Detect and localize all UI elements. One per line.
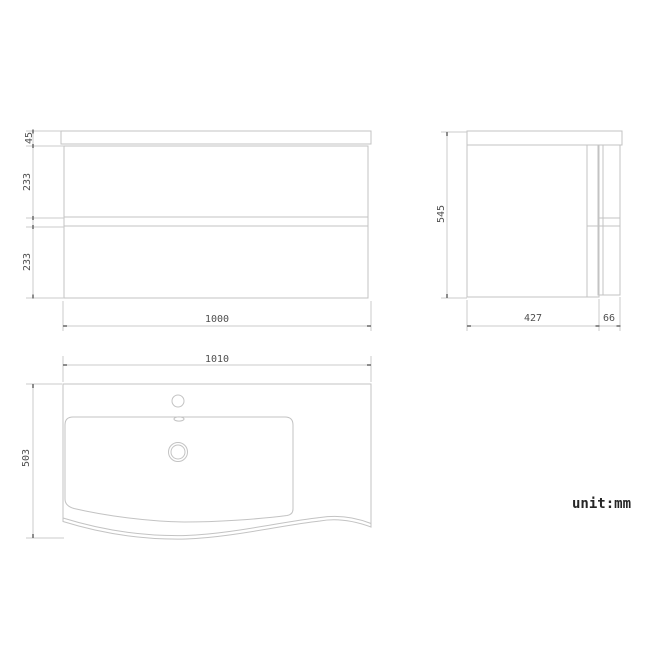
front-view-left-dimension: 45 233 233 (22, 130, 64, 299)
technical-drawing-page: 45 233 233 1000 5 (0, 0, 650, 650)
overflow-slot-icon (174, 417, 184, 421)
plan-outer-outline (63, 384, 371, 539)
unit-note: unit:mm (572, 496, 631, 512)
plan-basin-bowl (65, 417, 293, 522)
side-drawer-fronts (598, 145, 620, 295)
plan-overall-depth-label: 503 (21, 449, 32, 467)
plan-overall-width-label: 1010 (205, 354, 229, 365)
front-view-cabinet-outline (61, 131, 371, 298)
side-view-left-dimension: 545 (436, 132, 467, 298)
side-view-cabinet-outline (467, 131, 622, 297)
front-overall-width-label: 1000 (205, 314, 229, 325)
faucet-hole-icon (172, 395, 184, 407)
front-view-bottom-dimension: 1000 (63, 301, 371, 331)
side-drawer-front-depth-label: 66 (603, 313, 615, 324)
side-view-bottom-dimension: 427 66 (467, 297, 621, 331)
side-body-depth-label: 427 (524, 313, 542, 324)
plan-view-top-dimension: 1010 (63, 354, 371, 382)
plan-view-basin-outline (63, 384, 371, 539)
front-top-drawer-height-label: 233 (22, 173, 33, 191)
plan-view-left-dimension: 503 (21, 384, 64, 538)
vanity-dimension-drawing: 45 233 233 1000 5 (0, 0, 650, 650)
front-countertop-height-label: 45 (24, 132, 35, 144)
side-view: 545 427 66 (436, 131, 622, 331)
side-overall-height-label: 545 (436, 205, 447, 223)
front-bottom-drawer-height-label: 233 (22, 253, 33, 271)
drain-hole-inner-icon (171, 445, 185, 459)
plan-view: 1010 503 (21, 354, 371, 539)
front-cabinet-body (64, 146, 368, 298)
side-countertop (467, 131, 622, 145)
front-countertop (61, 131, 371, 144)
front-view: 45 233 233 1000 (22, 130, 371, 332)
side-cabinet-body (467, 145, 599, 297)
